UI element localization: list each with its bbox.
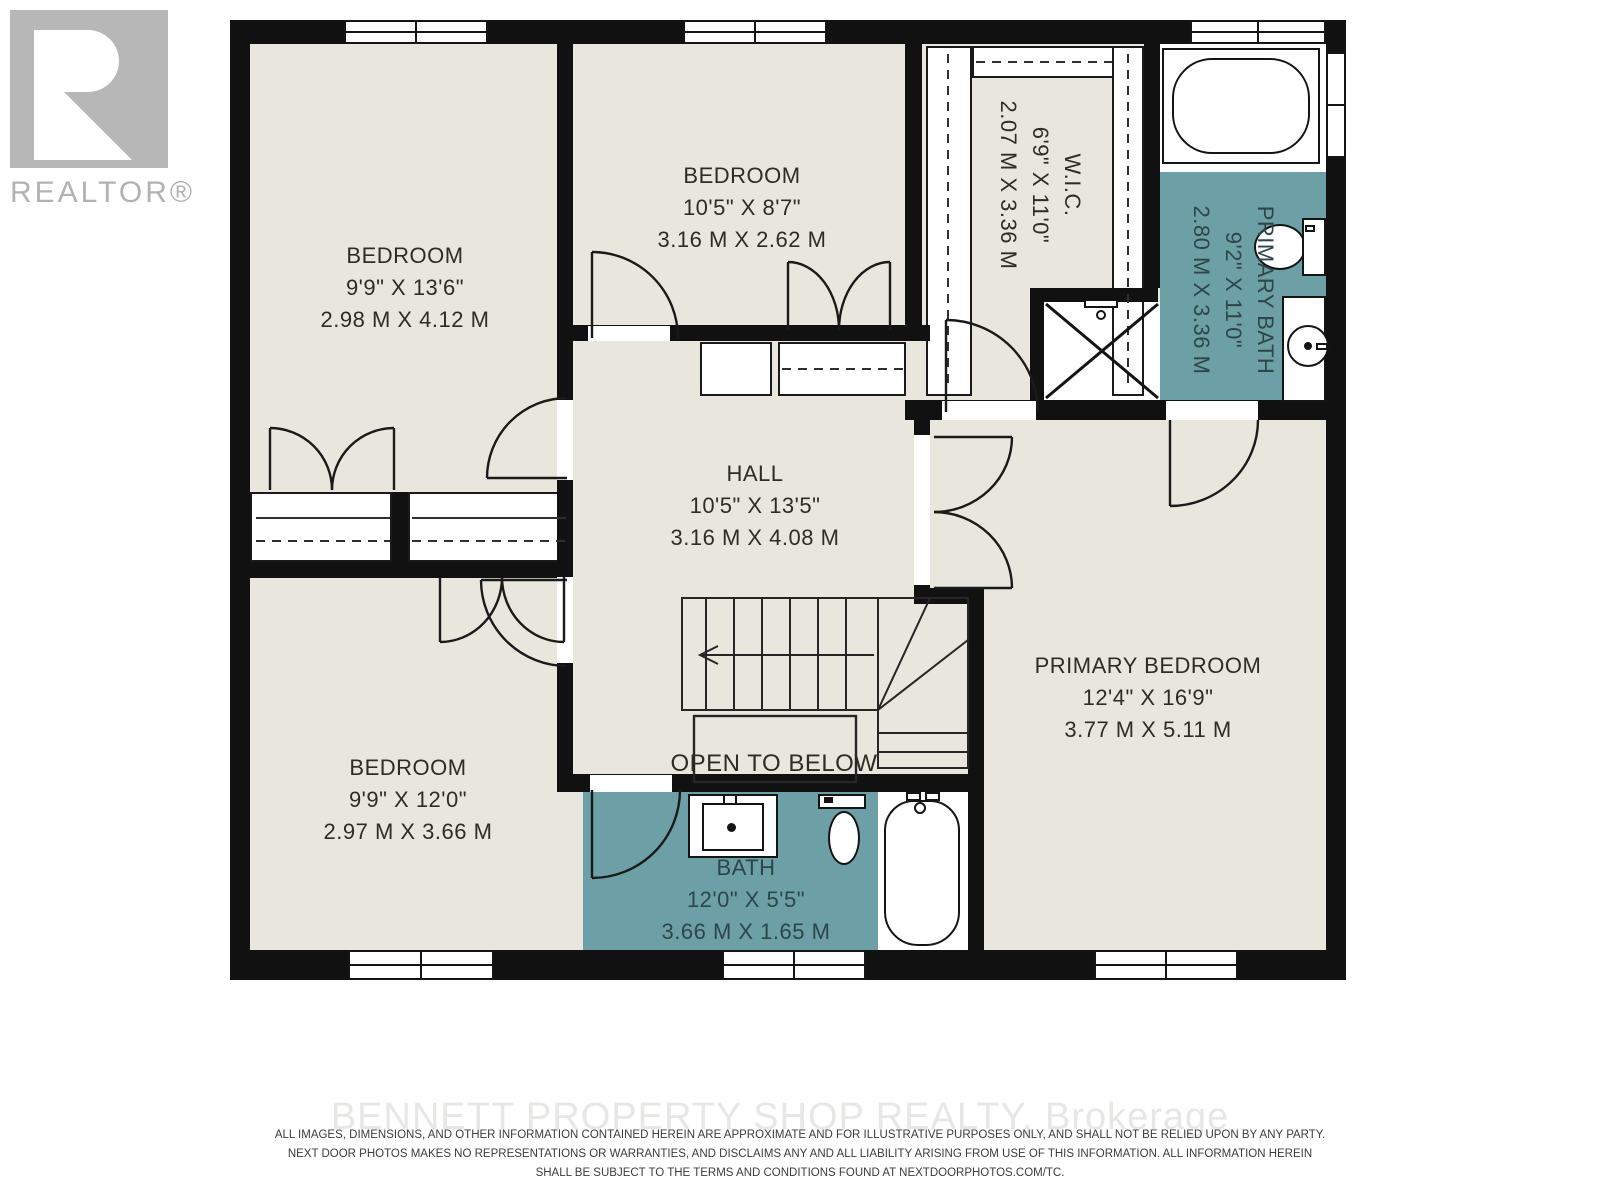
wic-closet-strip-right xyxy=(1112,46,1144,396)
bathtub-faucet-knob xyxy=(914,802,926,814)
room-name: W.I.C. xyxy=(1056,85,1088,285)
wall xyxy=(392,492,408,562)
room-name: BATH xyxy=(596,852,896,884)
wic-closet-strip-left xyxy=(926,46,972,396)
disclaimer-text: ALL IMAGES, DIMENSIONS, AND OTHER INFORM… xyxy=(200,1126,1400,1183)
room-dims-metric: 2.97 M X 3.66 M xyxy=(258,816,558,848)
room-label-bath: BATH 12'0" X 5'5" 3.66 M X 1.65 M xyxy=(596,852,896,948)
wall xyxy=(1144,42,1160,288)
toilet-bath-handle xyxy=(824,797,833,803)
window xyxy=(683,20,827,44)
closet-top-middle xyxy=(778,342,906,396)
door-opening xyxy=(1166,401,1258,420)
linen-closet xyxy=(700,342,772,396)
room-dims-imperial: 9'9" X 12'0" xyxy=(258,784,558,816)
window xyxy=(1190,20,1326,44)
bathtub-primary xyxy=(1172,58,1310,154)
room-label-hall: HALL 10'5" X 13'5" 3.16 M X 4.08 M xyxy=(605,458,905,554)
room-dims-metric: 2.07 M X 3.36 M xyxy=(992,85,1024,285)
door-opening xyxy=(557,400,573,480)
room-dims-imperial: 12'4" X 16'9" xyxy=(968,682,1328,714)
window xyxy=(722,950,866,980)
wall xyxy=(905,42,922,341)
sink-primary-faucet xyxy=(1316,343,1328,350)
room-dims-metric: 3.16 M X 4.08 M xyxy=(605,522,905,554)
shower-head-icon xyxy=(1084,299,1118,308)
window xyxy=(344,20,488,44)
room-label-primary-bath: PRIMARY BATH 9'2" X 11'0" 2.80 M X 3.36 … xyxy=(1185,190,1281,390)
room-dims-metric: 3.66 M X 1.65 M xyxy=(596,916,896,948)
wall xyxy=(914,420,930,435)
bathtub-faucet-right xyxy=(925,792,940,801)
room-dims-metric: 2.98 M X 4.12 M xyxy=(255,304,555,336)
room-name: BEDROOM xyxy=(592,160,892,192)
room-dims-metric: 3.77 M X 5.11 M xyxy=(968,714,1328,746)
wall xyxy=(557,663,573,774)
sink-bath-drain xyxy=(727,823,736,832)
sink-bath-faucet xyxy=(723,794,737,805)
disclaimer-line-1: ALL IMAGES, DIMENSIONS, AND OTHER INFORM… xyxy=(200,1126,1400,1145)
wall xyxy=(968,588,984,950)
toilet-primary-handle xyxy=(1305,225,1315,232)
wall xyxy=(1326,20,1346,980)
room-name: BEDROOM xyxy=(255,240,555,272)
door-opening xyxy=(588,326,670,341)
sink-primary-drain xyxy=(1304,342,1312,350)
room-name: PRIMARY BEDROOM xyxy=(968,650,1328,682)
shower-head-drop xyxy=(1096,310,1106,320)
room-label-primary-bedroom: PRIMARY BEDROOM 12'4" X 16'9" 3.77 M X 5… xyxy=(968,650,1328,746)
room-dims-imperial: 10'5" X 8'7" xyxy=(592,192,892,224)
door-opening xyxy=(557,577,573,663)
room-dims-imperial: 9'9" X 13'6" xyxy=(255,272,555,304)
wall xyxy=(250,562,572,578)
room-dims-metric: 3.16 M X 2.62 M xyxy=(592,224,892,256)
room-name: BEDROOM xyxy=(258,752,558,784)
room-name: HALL xyxy=(605,458,905,490)
room-dims-imperial: 9'2" X 11'0" xyxy=(1217,190,1249,390)
room-dims-metric: 2.80 M X 3.36 M xyxy=(1185,190,1217,390)
floorplan-page: { "branding": { "realtor_label": "REALTO… xyxy=(0,0,1600,1200)
closet-top-left-b xyxy=(408,492,568,562)
disclaimer-line-3: SHALL BE SUBJECT TO THE TERMS AND CONDIT… xyxy=(200,1164,1400,1183)
window xyxy=(1326,52,1346,158)
room-name: PRIMARY BATH xyxy=(1249,190,1281,390)
room-label-bedroom-top-middle: BEDROOM 10'5" X 8'7" 3.16 M X 2.62 M xyxy=(592,160,892,256)
room-dims-imperial: 10'5" X 13'5" xyxy=(605,490,905,522)
room-label-wic: W.I.C. 6'9" X 11'0" 2.07 M X 3.36 M xyxy=(992,85,1088,285)
room-dims-imperial: 6'9" X 11'0" xyxy=(1024,85,1056,285)
wall xyxy=(1030,288,1044,400)
door-opening xyxy=(942,401,1036,420)
door-opening xyxy=(914,435,930,585)
room-label-bedroom-bottom-left: BEDROOM 9'9" X 12'0" 2.97 M X 3.66 M xyxy=(258,752,558,848)
disclaimer-line-2: NEXT DOOR PHOTOS MAKES NO REPRESENTATION… xyxy=(200,1145,1400,1164)
bathtub-faucet-left xyxy=(906,792,921,801)
closet-top-left-a xyxy=(250,492,392,562)
wall xyxy=(557,42,573,400)
wic-closet-strip-top xyxy=(972,46,1114,78)
floor-plan: BEDROOM 9'9" X 13'6" 2.98 M X 4.12 M BED… xyxy=(0,0,1600,1200)
open-to-below-label: OPEN TO BELOW xyxy=(614,750,934,778)
room-dims-imperial: 12'0" X 5'5" xyxy=(596,884,896,916)
window xyxy=(348,950,494,980)
wall xyxy=(230,20,250,980)
room-label-bedroom-top-left: BEDROOM 9'9" X 13'6" 2.98 M X 4.12 M xyxy=(255,240,555,336)
window xyxy=(1094,950,1238,980)
